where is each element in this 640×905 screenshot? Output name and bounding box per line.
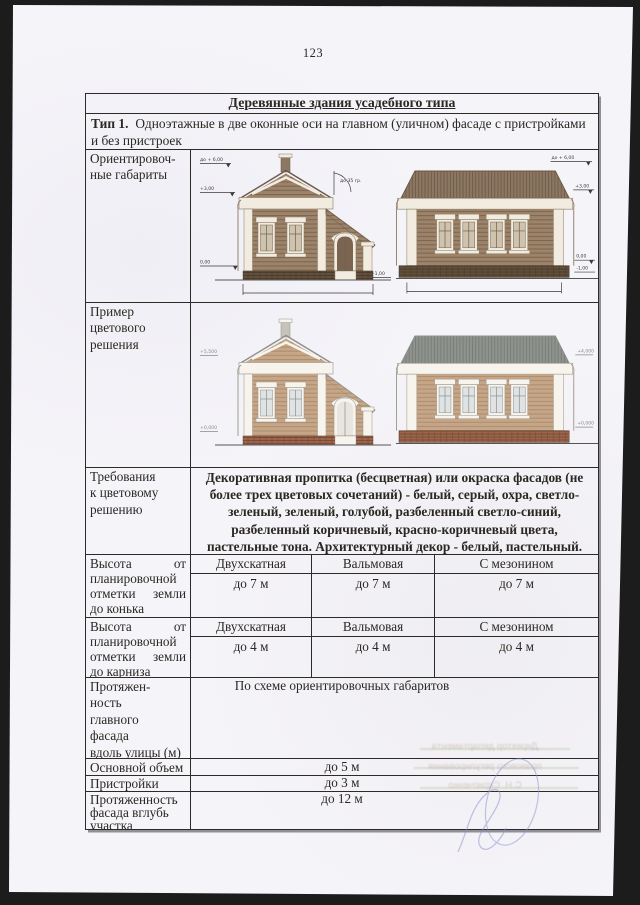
foundation — [399, 431, 569, 443]
foundation — [399, 266, 569, 278]
chimney-cap — [279, 319, 292, 323]
window — [256, 217, 277, 257]
window — [435, 214, 456, 254]
dimension-bracket — [407, 282, 561, 293]
roof-type-column: С мезонином до 7 м — [434, 555, 598, 617]
svg-text:до 35 гр.: до 35 гр. — [340, 178, 362, 184]
house-b-drawing-color: до + 6,00 +3,00 0,00 -1,00 +4,000 +0,000 — [396, 317, 598, 465]
svg-text:+0,000: +0,000 — [200, 425, 217, 431]
hipped-roof — [401, 171, 569, 198]
window — [285, 217, 306, 257]
entry-steps — [335, 436, 356, 445]
svg-text:до + 6,00: до + 6,00 — [200, 157, 223, 163]
annex-pilaster — [363, 410, 372, 436]
pilaster-left — [244, 209, 253, 271]
roof-type-header: Двухскатная — [191, 555, 311, 574]
type-label: Тип 1. — [91, 116, 128, 131]
roof-type-column: Двухскатная до 4 м — [191, 618, 311, 677]
svg-text:0,00: 0,00 — [576, 254, 586, 260]
ridge-height-row: Высота от планировочной отметки земли до… — [86, 554, 598, 617]
pilaster-left — [407, 374, 417, 430]
svg-text:+3,00: +3,00 — [200, 186, 214, 192]
pilaster-right — [318, 374, 327, 436]
roof-type-header: Двухскатная — [191, 618, 311, 637]
cornice — [397, 363, 572, 374]
house-a-drawing-mono: до + 6,00 +3,00 0,00 -1,00 до 35 гр. — [197, 152, 393, 300]
cornice — [239, 198, 333, 210]
entry-steps — [335, 271, 356, 280]
color-example-row: Пример цветового решения до + 6,00 +3,00… — [86, 302, 598, 467]
pilaster-left — [407, 209, 417, 265]
building-type-table: Деревянные здания усадебного типа Тип 1.… — [85, 93, 599, 830]
roof-type-header: Вальмовая — [312, 618, 434, 637]
roof-type-column: Вальмовая до 4 м — [311, 618, 434, 677]
house-a-drawing-color: до + 6,00 +3,00 0,00 -1,00 до 35 гр. — [197, 317, 393, 465]
roof-type-value: до 4 м — [435, 637, 598, 656]
house-b-drawing-mono: до + 6,00 +3,00 0,00 -1,00 +4,000 +0,000 — [396, 152, 598, 300]
type-text: Одноэтажные в две оконные оси на главном… — [91, 116, 586, 148]
eaves-height-row: Высота от планировочной отметки земли до… — [86, 617, 598, 677]
main-wall — [407, 209, 563, 265]
color-requirements-row: Требования к цветовому решению Декоратив… — [86, 467, 598, 554]
roof-type-column: Вальмовая до 7 м — [311, 555, 434, 617]
roof-type-value: до 4 м — [191, 637, 311, 656]
svg-text:-1,00: -1,00 — [576, 266, 588, 272]
roof-type-value: до 7 м — [312, 574, 434, 593]
color-requirements-text: Декоративная пропитка (бесцветная) или о… — [191, 468, 598, 554]
color-elevation-marks: +5,500 +0,000 — [200, 349, 218, 432]
annex-pilaster — [363, 245, 372, 271]
type-description-row: Тип 1.Одноэтажные в две оконные оси на г… — [86, 113, 598, 149]
signature-artifact — [440, 750, 550, 858]
annex-pilaster-cap — [361, 242, 374, 246]
roof-type-header: С мезонином — [435, 618, 598, 637]
cornice — [239, 363, 333, 375]
svg-text:+4,000: +4,000 — [577, 348, 594, 354]
main-wall — [407, 374, 563, 430]
row-label-ridge: Высота от планировочной отметки земли до… — [86, 555, 191, 617]
cornice — [397, 198, 572, 209]
pilaster-right — [553, 209, 563, 265]
svg-text:+5,500: +5,500 — [200, 349, 217, 355]
roof-type-value: до 7 м — [191, 574, 311, 593]
roof-type-column: С мезонином до 4 м — [434, 618, 598, 677]
chimney — [281, 156, 290, 172]
svg-text:+3,00: +3,00 — [575, 183, 589, 189]
svg-text:+0,000: +0,000 — [577, 421, 594, 427]
ridge-columns: Двухскатная до 7 м Вальмовая до 7 м С ме… — [191, 555, 598, 617]
svg-text:0,00: 0,00 — [200, 260, 210, 266]
window — [256, 382, 277, 422]
orientation-dimensions-row: Ориентировоч- ные габариты до + 6,00 +3,… — [86, 149, 598, 302]
roof-type-value: до 4 м — [312, 637, 434, 656]
roof-type-header: Вальмовая — [312, 555, 434, 574]
row-label-eaves: Высота от планировочной отметки земли до… — [86, 618, 191, 677]
window — [486, 379, 507, 419]
scanned-page: 123 Директор департамента правового регу… — [0, 0, 640, 905]
window — [509, 214, 530, 254]
window — [509, 379, 530, 419]
paper-sheet: 123 Директор департамента правового регу… — [0, 0, 640, 905]
pilaster-right — [553, 374, 563, 430]
row-label-colorex: Пример цветового решения — [86, 303, 191, 467]
color-example-drawings: до + 6,00 +3,00 0,00 -1,00 до 35 гр. — [191, 303, 598, 467]
row-label-colorreq: Требования к цветовому решению — [86, 468, 191, 554]
window — [285, 382, 306, 422]
orient-drawings: до + 6,00 +3,00 0,00 -1,00 до 35 гр. — [191, 150, 598, 302]
table-title: Деревянные здания усадебного типа — [86, 94, 598, 113]
chimney — [281, 321, 290, 337]
chimney-cap — [279, 154, 292, 158]
downpipe — [238, 200, 241, 271]
page-number: 123 — [288, 46, 338, 61]
window — [486, 214, 507, 254]
facade-length-value: По схеме ориентировочных габаритов — [86, 678, 598, 695]
roof-type-header: С мезонином — [435, 555, 598, 574]
downpipe — [238, 365, 241, 436]
color-elevation-marks: +4,000 +0,000 — [575, 348, 594, 427]
facade-length-row: Протяжен- ность главного фасада вдоль ул… — [86, 677, 598, 758]
eaves-columns: Двухскатная до 4 м Вальмовая до 4 м С ме… — [191, 618, 598, 677]
svg-text:-1,00: -1,00 — [373, 271, 385, 277]
window — [458, 214, 479, 254]
annex-pilaster-cap — [361, 407, 374, 411]
pilaster-right — [318, 209, 327, 271]
window — [458, 379, 479, 419]
dimension-bracket — [243, 284, 373, 295]
pilaster-left — [244, 374, 253, 436]
roof-type-value: до 7 м — [435, 574, 598, 593]
svg-text:до + 6,00: до + 6,00 — [551, 155, 574, 161]
hipped-roof — [401, 336, 569, 363]
row-label-orient: Ориентировоч- ные габариты — [86, 150, 191, 302]
window — [435, 379, 456, 419]
roof-type-column: Двухскатная до 7 м — [191, 555, 311, 617]
